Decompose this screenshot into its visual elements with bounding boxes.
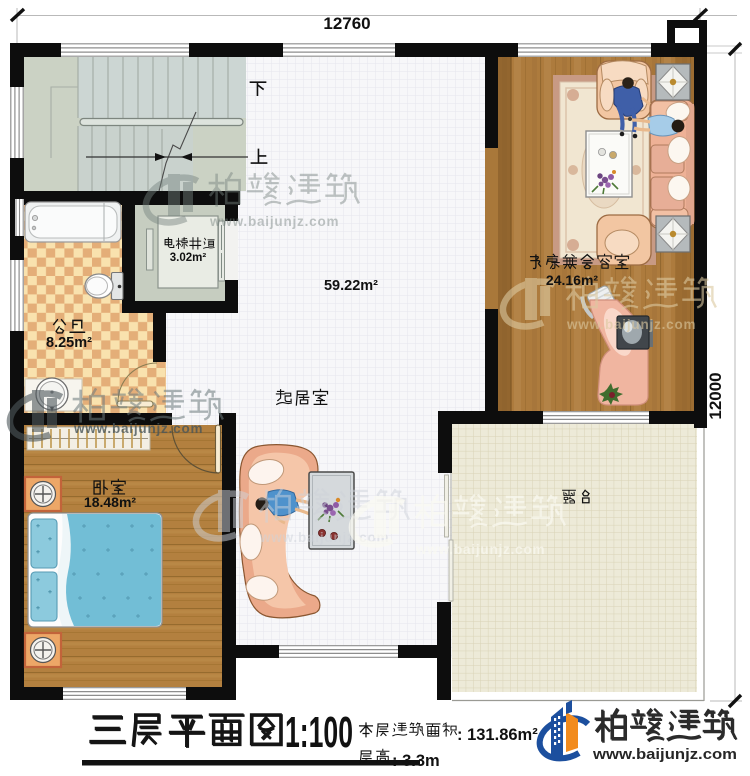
svg-text:: 3.3m: : 3.3m [392, 752, 440, 770]
svg-text:www.baijunjz.com: www.baijunjz.com [415, 542, 545, 557]
svg-text:24.16m²: 24.16m² [546, 272, 598, 288]
svg-text:18.48m²: 18.48m² [84, 494, 136, 510]
svg-text:8.25m²: 8.25m² [46, 335, 92, 351]
svg-text:59.22m²: 59.22m² [324, 278, 378, 294]
svg-text:www.baijunjz.com: www.baijunjz.com [566, 317, 696, 332]
svg-text:www.baijunjz.com: www.baijunjz.com [73, 421, 203, 436]
svg-text:12000: 12000 [706, 372, 725, 419]
svg-text:12760: 12760 [323, 14, 370, 33]
svg-text:www.baijunjz.com: www.baijunjz.com [592, 747, 737, 763]
svg-text:: 131.86m²: : 131.86m² [457, 726, 538, 744]
svg-text:www.baijunjz.com: www.baijunjz.com [209, 214, 339, 229]
svg-text:3.02m²: 3.02m² [170, 252, 207, 264]
svg-text:1:100: 1:100 [285, 708, 353, 757]
